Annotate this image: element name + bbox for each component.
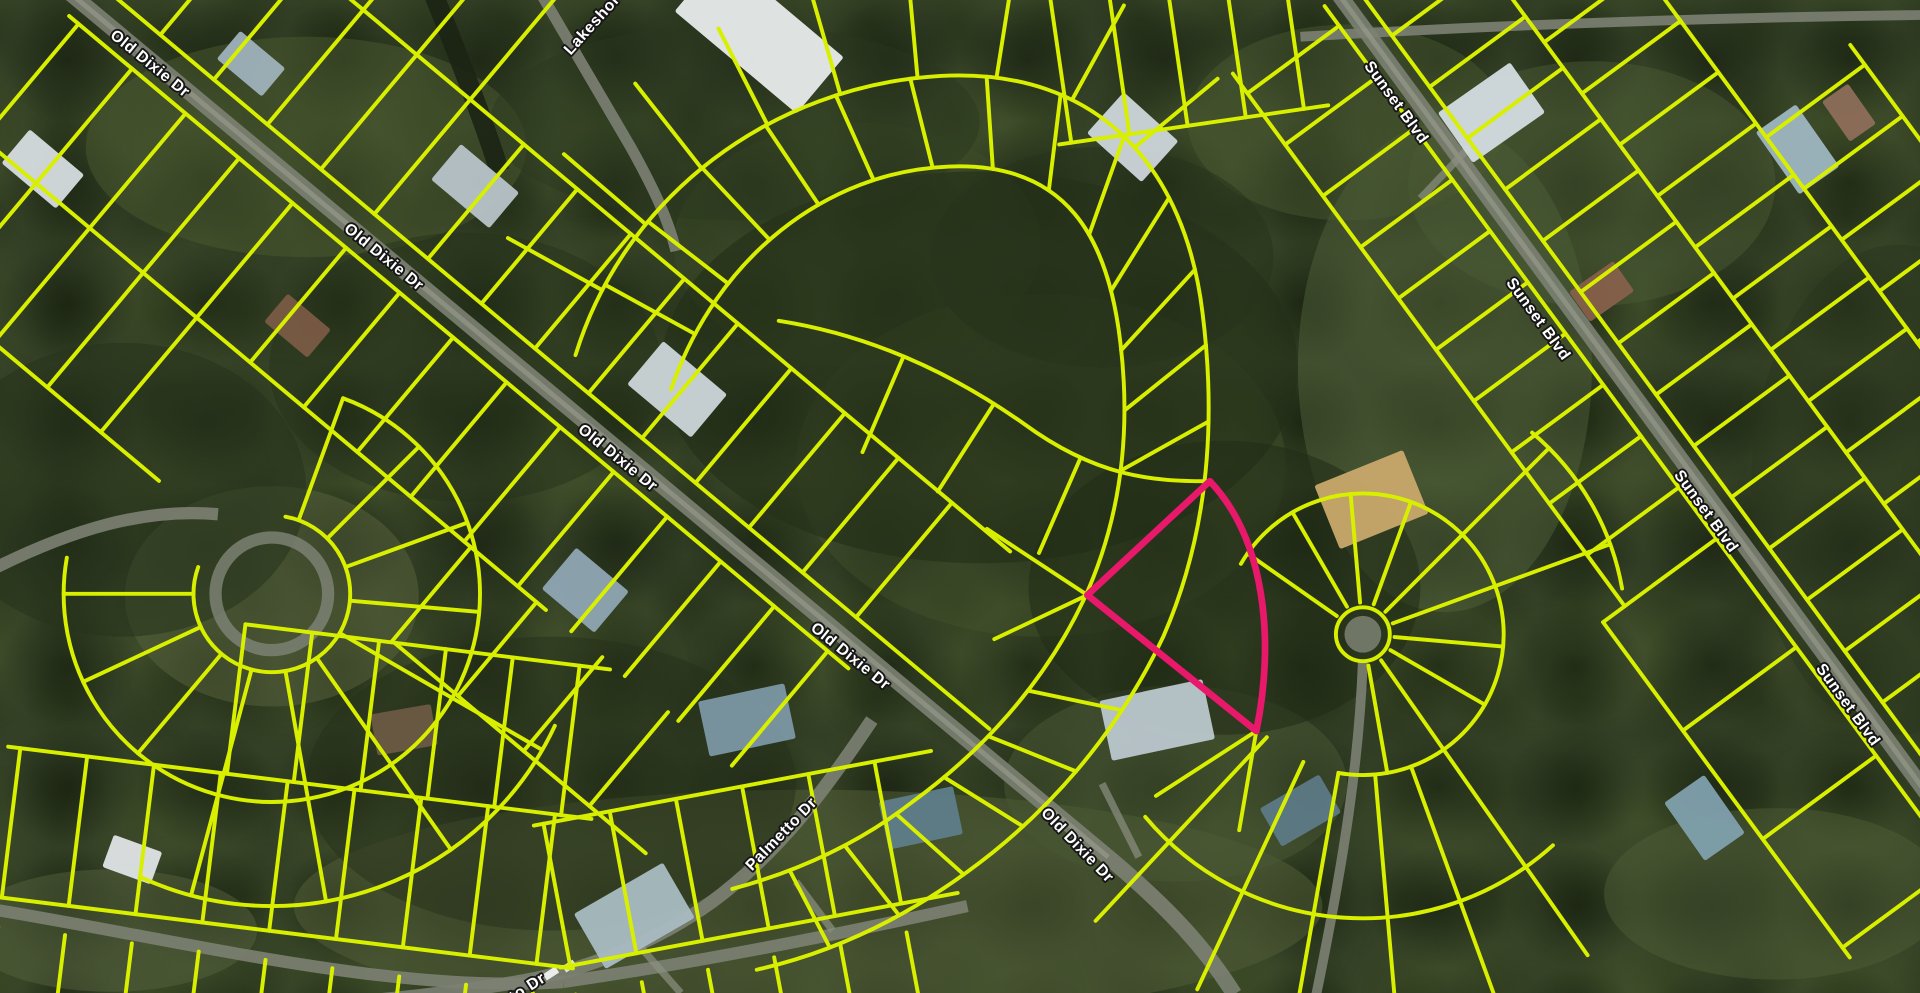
street-label: Old Dixie Dr [807,619,893,693]
map-viewport[interactable]: Old Dixie DrOld Dixie DrOld Dixie DrOld … [0,0,1920,993]
terrain-layer [0,0,1920,993]
